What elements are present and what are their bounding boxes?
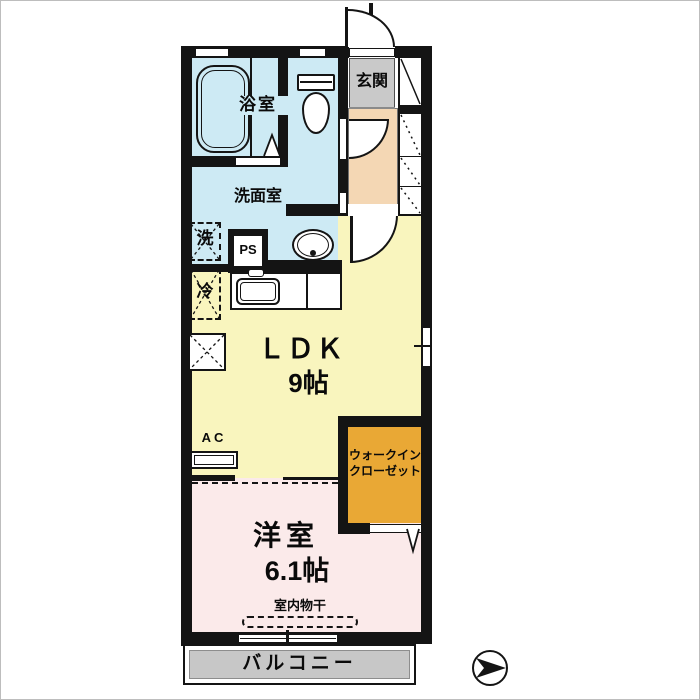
kitchen-sink-inner-line [240, 282, 276, 301]
indoor-drying-rail [242, 616, 358, 628]
cabinet-hatch-box [188, 333, 226, 371]
partition-dashed-line [192, 482, 338, 484]
toilet-door-opening [339, 119, 347, 159]
indoor-drying-label: 室内物干 [240, 599, 360, 613]
ldk-size-label: 9帖 [256, 369, 361, 398]
compass-circle [472, 650, 508, 686]
ldk-label: ＬＤＫ [229, 335, 374, 365]
wall-ldk-bedroom-segment [192, 475, 235, 481]
bedroom-label: 洋室 [226, 521, 346, 552]
wall-ldk-bedroom-thin [283, 477, 339, 480]
ldk-window-tick [414, 345, 430, 347]
entrance-step-line [349, 107, 395, 109]
ldk-door-opening [348, 204, 398, 216]
ldk-side-window [422, 327, 431, 367]
wall-kitchen-back [262, 260, 342, 272]
storage-box-2 [399, 156, 422, 187]
kitchen-counter-divider [306, 274, 308, 308]
closet-label-line1: ウォークイン [349, 449, 420, 462]
pipe-space-label: PS [234, 243, 262, 257]
toilet-window [299, 48, 326, 57]
entrance-door-swing-arc [348, 9, 395, 47]
entrance-label: 玄関 [350, 73, 394, 91]
storage-box-1 [399, 113, 422, 157]
ac-unit-inner-line [194, 455, 234, 465]
bathroom-door-opening [236, 157, 280, 166]
bedroom-size-label: 6.1帖 [237, 557, 357, 587]
wall-closet-left [338, 416, 348, 534]
shoe-cabinet-box [399, 57, 422, 106]
wall-closet-top [338, 416, 432, 427]
storage-box-3 [399, 186, 422, 215]
balcony-window-tick [286, 630, 289, 646]
washbasin-drain-dot [310, 250, 316, 256]
bathroom-window [195, 48, 229, 57]
toilet-tank-line [300, 81, 332, 83]
entrance-door-sill [349, 48, 395, 57]
fridge-label: 冷 [192, 283, 218, 302]
closet-door-opening [370, 524, 421, 533]
closet-label-line2: クローゼット [349, 465, 420, 478]
washroom-door-opening [339, 193, 347, 213]
washroom-label: 洗面室 [221, 188, 295, 206]
balcony-label: バルコニー [242, 654, 357, 675]
kitchen-faucet-icon [248, 269, 264, 277]
bathroom-label: 浴室 [224, 96, 292, 115]
floor-plan: バルコニー [0, 0, 700, 700]
entrance-door-leaf [345, 7, 348, 51]
balcony-floor: バルコニー [189, 650, 410, 679]
washer-label: 洗 [192, 230, 218, 249]
ac-label: AC [189, 431, 239, 445]
